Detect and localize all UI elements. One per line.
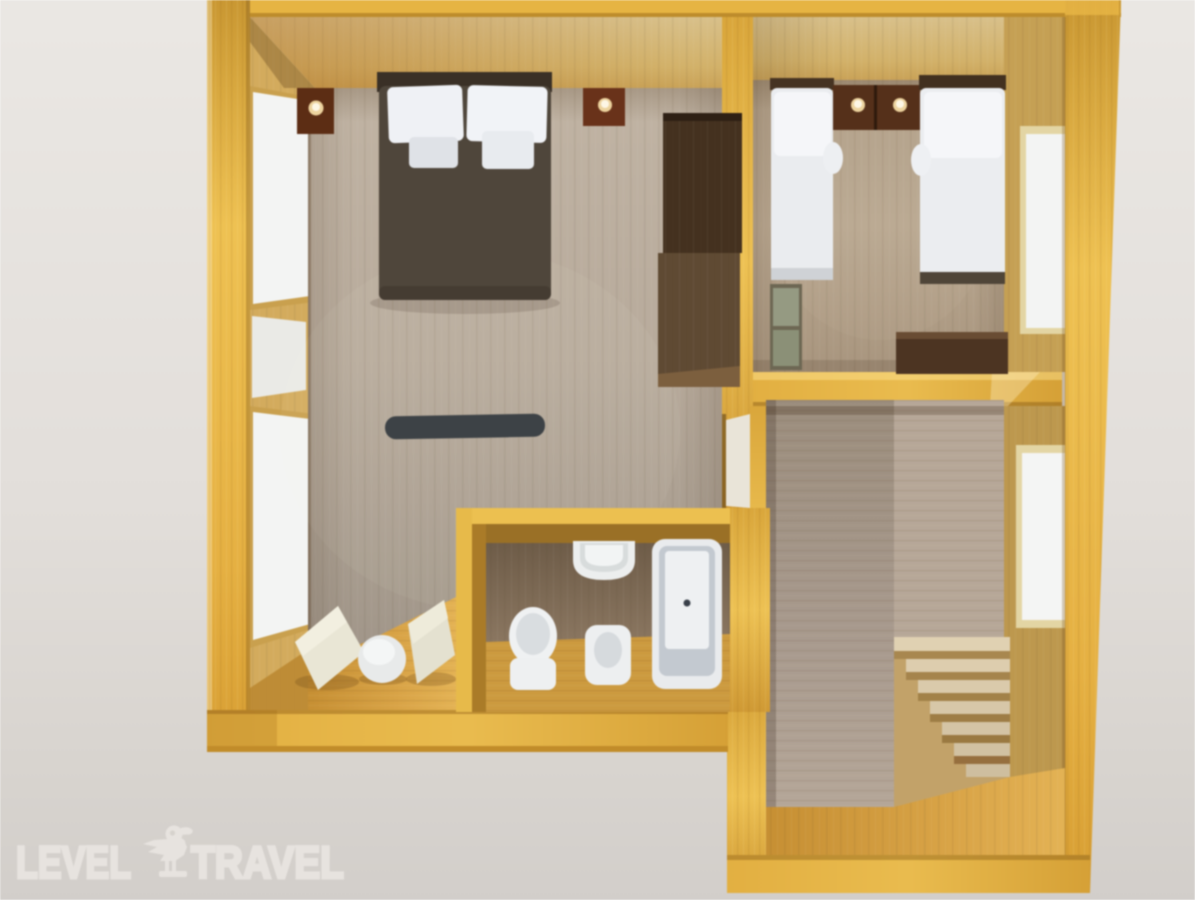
svg-text:LEVEL: LEVEL	[16, 837, 131, 888]
svg-text:TRAVEL: TRAVEL	[191, 837, 344, 888]
